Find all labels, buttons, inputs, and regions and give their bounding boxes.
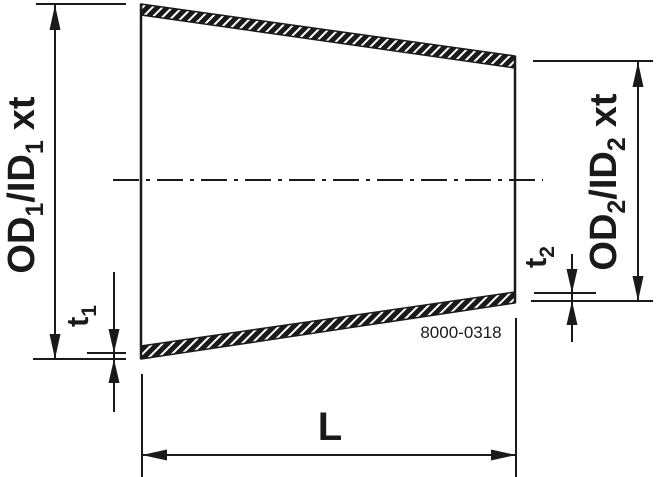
part-number-label: 8000-0318	[420, 323, 501, 342]
t1-label: t1	[60, 305, 101, 327]
t2-arrow-down-icon	[567, 269, 578, 293]
t2-label: t2	[518, 246, 559, 268]
reducer-body	[113, 4, 543, 359]
od1-arrow-down-icon	[50, 334, 61, 359]
od2-id2-label: OD2/ID2xt	[583, 93, 631, 271]
length-arrow-right-icon	[491, 450, 516, 461]
reducer-technical-drawing: OD1/ID1xt t1 OD2/ID2xt t2 L 8000-0318	[0, 0, 659, 477]
length-arrow-left-icon	[142, 450, 167, 461]
od1-id1-label: OD1/ID1xt	[1, 96, 49, 274]
t1-arrow-down-icon	[109, 329, 120, 353]
dimension-t1: t1	[60, 272, 126, 412]
length-label: L	[318, 405, 342, 449]
top-wall-hatch	[141, 4, 515, 68]
reducer-diagram-canvas: OD1/ID1xt t1 OD2/ID2xt t2 L 8000-0318	[0, 0, 659, 477]
od2-arrow-down-icon	[633, 276, 644, 301]
t1-arrow-up-icon	[109, 359, 120, 383]
od1-arrow-up-icon	[50, 5, 61, 30]
od2-arrow-up-icon	[633, 62, 644, 87]
dimension-od1-id1: OD1/ID1xt	[1, 4, 126, 359]
t2-arrow-up-icon	[567, 301, 578, 325]
